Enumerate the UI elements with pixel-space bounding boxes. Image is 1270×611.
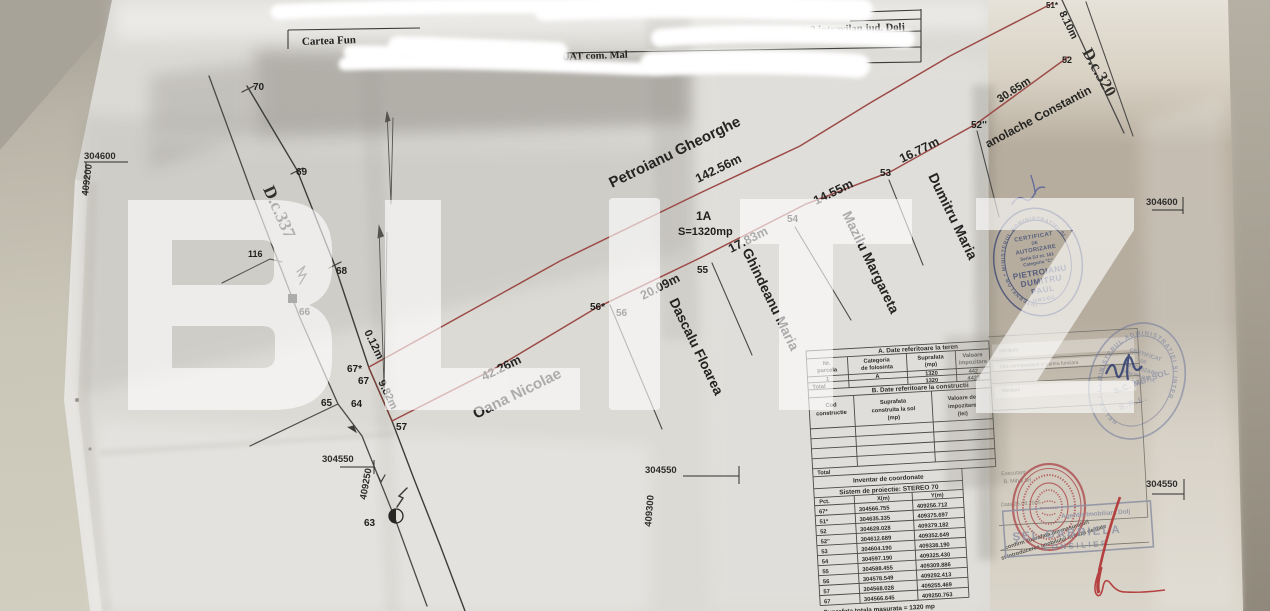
- svg-text:52'': 52'': [821, 539, 831, 546]
- svg-text:1320: 1320: [925, 371, 938, 378]
- svg-text:Pct.: Pct.: [819, 499, 830, 506]
- svg-text:52'': 52'': [971, 120, 987, 131]
- svg-text:304600: 304600: [84, 151, 116, 162]
- svg-text:69: 69: [296, 167, 308, 178]
- svg-text:63: 63: [364, 518, 376, 529]
- svg-text:Total: Total: [817, 470, 831, 477]
- svg-text:(mp): (mp): [888, 415, 901, 422]
- svg-text:116: 116: [248, 249, 263, 259]
- svg-text:54: 54: [822, 559, 830, 565]
- svg-text:304550: 304550: [1146, 479, 1178, 490]
- svg-text:304600: 304600: [1146, 197, 1178, 208]
- svg-text:52: 52: [1062, 55, 1072, 65]
- svg-text:55: 55: [697, 265, 709, 276]
- svg-text:56*: 56*: [590, 302, 605, 313]
- svg-text:S=1320mp: S=1320mp: [678, 226, 733, 238]
- svg-text:67: 67: [824, 599, 831, 605]
- svg-text:(mp): (mp): [925, 362, 938, 369]
- svg-text:64: 64: [351, 399, 363, 410]
- svg-text:67*: 67*: [347, 364, 362, 375]
- svg-text:53: 53: [880, 168, 892, 179]
- svg-text:304550: 304550: [322, 454, 354, 465]
- svg-text:52: 52: [820, 529, 827, 535]
- svg-text:51*: 51*: [1046, 1, 1059, 10]
- svg-text:Y(m): Y(m): [931, 493, 944, 500]
- svg-text:68: 68: [336, 266, 348, 277]
- svg-text:51*: 51*: [819, 519, 829, 526]
- svg-text:55: 55: [822, 569, 830, 575]
- svg-text:70: 70: [253, 82, 265, 93]
- svg-text:56: 56: [823, 579, 831, 585]
- svg-text:67*: 67*: [819, 509, 829, 516]
- svg-text:1A: 1A: [696, 209, 712, 223]
- svg-text:65: 65: [321, 398, 333, 409]
- svg-text:304550: 304550: [645, 465, 677, 476]
- svg-text:X(m): X(m): [877, 496, 890, 503]
- svg-text:53: 53: [821, 549, 829, 555]
- svg-text:A: A: [875, 374, 879, 380]
- svg-text:57: 57: [823, 589, 830, 595]
- svg-text:57: 57: [396, 422, 408, 433]
- svg-text:67: 67: [358, 376, 370, 387]
